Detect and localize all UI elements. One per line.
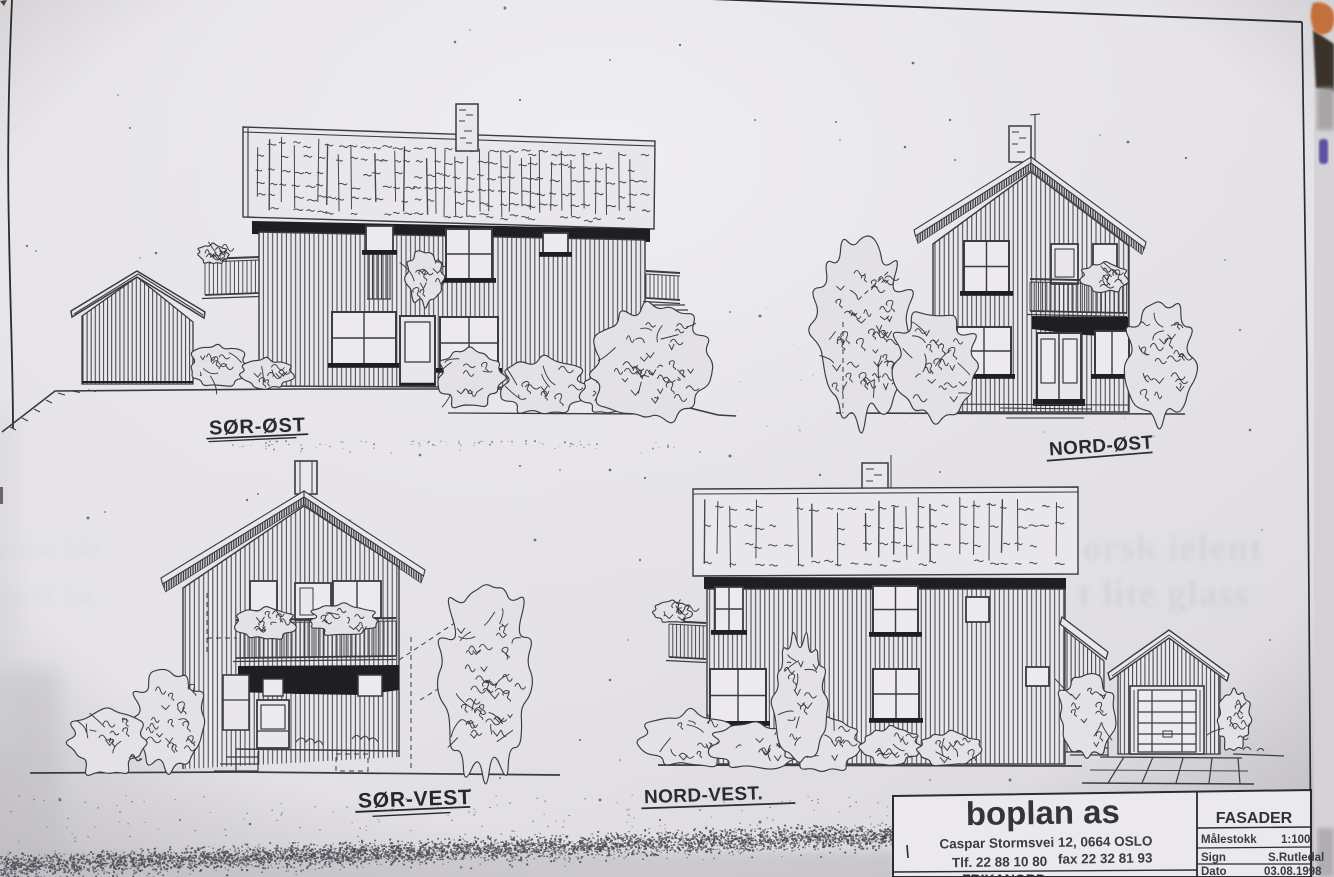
svg-text:FRIKANORD: FRIKANORD <box>962 871 1046 877</box>
svg-text:Caspar Stormsvei 12, 0664 OSLO: Caspar Stormsvei 12, 0664 OSLO <box>939 834 1152 852</box>
svg-text:S.Rutledal: S.Rutledal <box>1268 852 1324 864</box>
svg-text:Dato: Dato <box>1201 866 1227 877</box>
svg-text:t lite glass: t lite glass <box>1078 573 1250 615</box>
svg-text:huset ha: huset ha <box>0 578 94 611</box>
svg-text:Sign: Sign <box>1201 852 1226 864</box>
svg-text:fax 22 32 81 93: fax 22 32 81 93 <box>1058 850 1153 866</box>
svg-text:Tlf. 22 88 10 80: Tlf. 22 88 10 80 <box>952 854 1048 870</box>
svg-text:03.08.1998: 03.08.1998 <box>1264 866 1322 877</box>
svg-text:FASADER: FASADER <box>1216 810 1293 827</box>
svg-text:denne ble: denne ble <box>0 532 103 565</box>
svg-text:boplan as: boplan as <box>966 793 1121 832</box>
svg-text:orsk ielent: orsk ielent <box>1082 527 1263 569</box>
svg-text:1:100: 1:100 <box>1281 834 1310 846</box>
svg-text:Målestokk: Målestokk <box>1201 834 1257 846</box>
